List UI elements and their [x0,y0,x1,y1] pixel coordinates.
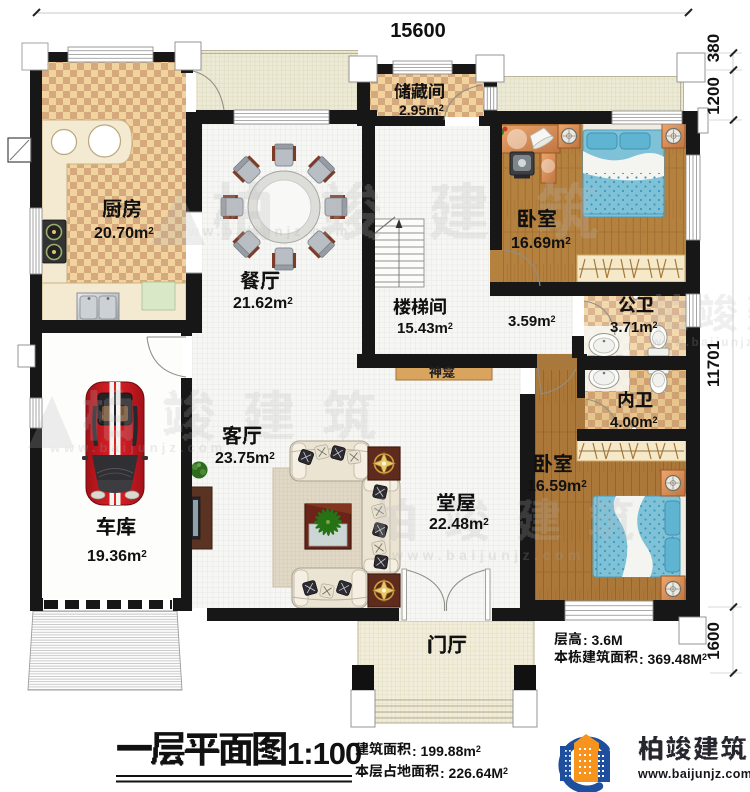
svg-text:22.48m2: 22.48m2 [429,516,489,533]
svg-text:15.43m2: 15.43m2 [397,320,453,337]
svg-text:23.75m2: 23.75m2 [215,450,275,467]
svg-text:3.59m2: 3.59m2 [508,313,556,330]
svg-text:1:100: 1:100 [287,736,361,771]
svg-text:: 3.6M: : 3.6M [583,632,623,648]
svg-text:16.69m2: 16.69m2 [511,235,571,252]
svg-text:: 369.48M2: : 369.48M2 [639,651,707,667]
svg-text:15600: 15600 [390,20,446,42]
svg-text:2.95m2: 2.95m2 [399,102,444,118]
svg-text:1200: 1200 [704,77,723,115]
svg-text:4.00m2: 4.00m2 [610,414,658,431]
svg-text:www.baijunjz.com: www.baijunjz.com [49,440,226,455]
svg-text:3.71m2: 3.71m2 [610,319,658,336]
svg-text:www.baijunjz.com: www.baijunjz.com [651,337,750,349]
svg-text:20.70m2: 20.70m2 [94,225,154,242]
svg-text:16.59m2: 16.59m2 [527,478,587,495]
svg-text:www.baijunjz.com: www.baijunjz.com [173,224,351,239]
svg-text:19.36m2: 19.36m2 [87,548,147,565]
svg-text:21.62m2: 21.62m2 [233,295,293,312]
svg-text:: 199.88m2: : 199.88m2 [412,743,481,759]
svg-text:: 226.64M2: : 226.64M2 [440,765,508,781]
svg-text:380: 380 [704,34,723,62]
svg-text:www.baijunjz.com: www.baijunjz.com [391,547,585,563]
svg-text:www.baijunjz.com: www.baijunjz.com [637,767,750,781]
svg-text:11701: 11701 [704,341,723,387]
